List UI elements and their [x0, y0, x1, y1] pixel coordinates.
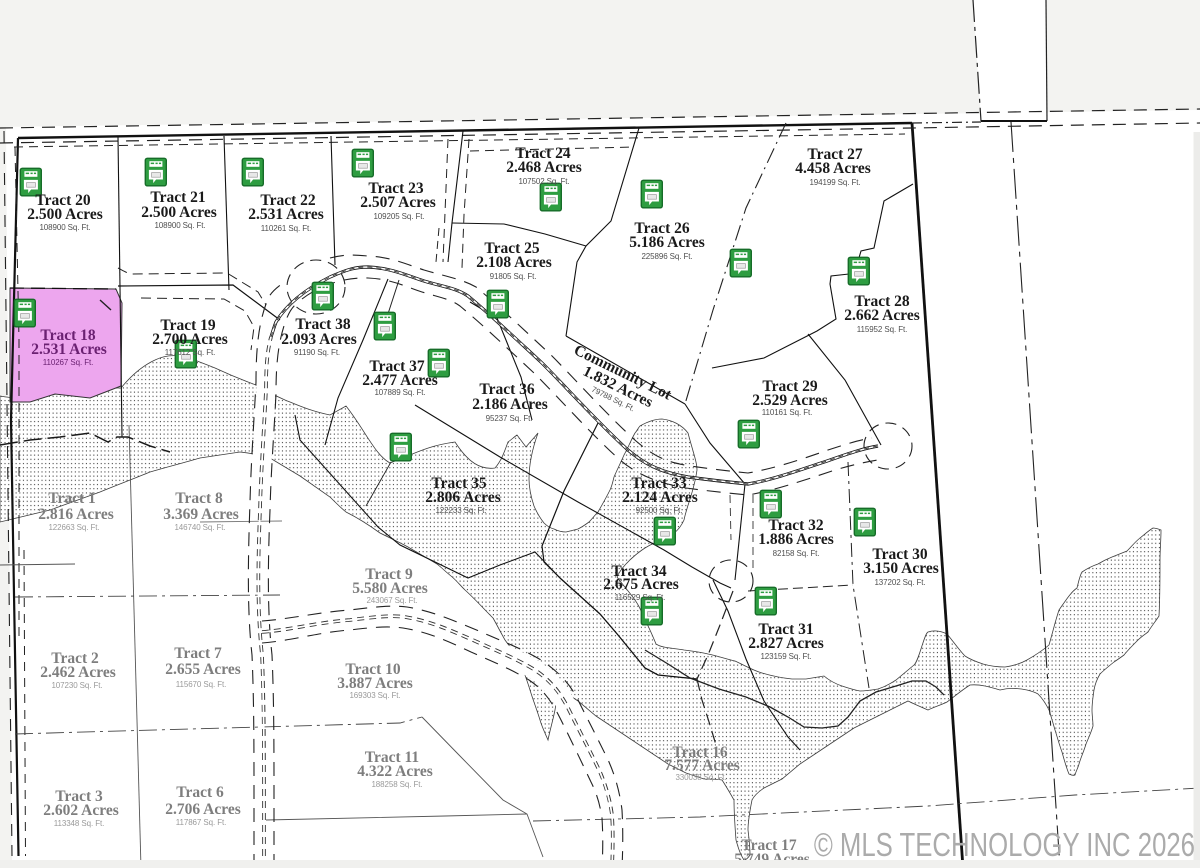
svg-text:108900 Sq. Ft.: 108900 Sq. Ft.: [39, 223, 90, 232]
svg-text:2.529 Acres: 2.529 Acres: [752, 392, 827, 409]
svg-text:109205 Sq. Ft.: 109205 Sq. Ft.: [373, 212, 424, 221]
svg-text:194199 Sq. Ft.: 194199 Sq. Ft.: [809, 178, 860, 187]
svg-text:4.322 Acres: 4.322 Acres: [357, 763, 432, 780]
svg-text:91805 Sq. Ft.: 91805 Sq. Ft.: [490, 272, 537, 281]
svg-text:2.462 Acres: 2.462 Acres: [40, 664, 115, 681]
svg-text:2.655 Acres: 2.655 Acres: [165, 661, 240, 678]
svg-text:243067 Sq. Ft.: 243067 Sq. Ft.: [366, 596, 417, 605]
svg-text:4.458 Acres: 4.458 Acres: [795, 160, 870, 177]
svg-text:110267 Sq. Ft.: 110267 Sq. Ft.: [43, 358, 94, 367]
svg-text:2.507 Acres: 2.507 Acres: [360, 194, 435, 211]
svg-text:Tract 7: Tract 7: [174, 645, 222, 662]
svg-text:7.577 Acres: 7.577 Acres: [664, 757, 739, 774]
svg-text:1.886 Acres: 1.886 Acres: [758, 531, 833, 548]
svg-text:95237 Sq. Ft.: 95237 Sq. Ft.: [486, 414, 533, 423]
svg-text:Tract 1: Tract 1: [48, 490, 95, 507]
svg-text:2.477 Acres: 2.477 Acres: [362, 372, 437, 389]
svg-text:108900 Sq. Ft.: 108900 Sq. Ft.: [154, 221, 205, 230]
svg-text:188258 Sq. Ft.: 188258 Sq. Ft.: [371, 780, 422, 789]
svg-text:2.531 Acres: 2.531 Acres: [248, 206, 323, 223]
svg-text:82158 Sq. Ft.: 82158 Sq. Ft.: [773, 549, 820, 558]
svg-text:2.806 Acres: 2.806 Acres: [425, 489, 500, 506]
svg-text:117867 Sq. Ft.: 117867 Sq. Ft.: [176, 818, 227, 827]
svg-text:2.186 Acres: 2.186 Acres: [472, 396, 547, 413]
svg-text:92500 Sq. Ft.: 92500 Sq. Ft.: [636, 506, 683, 515]
svg-text:2.108 Acres: 2.108 Acres: [476, 254, 551, 271]
svg-text:5.186 Acres: 5.186 Acres: [629, 234, 704, 251]
svg-text:107502 Sq. Ft.: 107502 Sq. Ft.: [518, 177, 569, 186]
svg-text:169303 Sq. Ft.: 169303 Sq. Ft.: [349, 691, 400, 700]
svg-text:330038 Sq. Ft.: 330038 Sq. Ft.: [675, 773, 726, 782]
svg-text:116529 Sq. Ft.: 116529 Sq. Ft.: [615, 593, 666, 602]
svg-text:2.500 Acres: 2.500 Acres: [27, 206, 102, 223]
svg-text:2.662 Acres: 2.662 Acres: [844, 307, 919, 324]
svg-text:91190 Sq. Ft.: 91190 Sq. Ft.: [294, 348, 340, 357]
svg-text:122233 Sq. Ft.: 122233 Sq. Ft.: [435, 506, 486, 515]
svg-text:Tract 6: Tract 6: [176, 784, 224, 801]
svg-text:5.580 Acres: 5.580 Acres: [352, 580, 427, 597]
svg-text:Tract 8: Tract 8: [175, 490, 223, 507]
svg-text:122663 Sq. Ft.: 122663 Sq. Ft.: [48, 523, 99, 532]
svg-text:110261 Sq. Ft.: 110261 Sq. Ft.: [261, 224, 312, 233]
svg-text:2.827 Acres: 2.827 Acres: [748, 635, 823, 652]
svg-text:107230 Sq. Ft.: 107230 Sq. Ft.: [51, 681, 102, 690]
svg-text:2.124 Acres: 2.124 Acres: [622, 489, 697, 506]
svg-text:2.602 Acres: 2.602 Acres: [43, 802, 118, 819]
svg-text:2.706 Acres: 2.706 Acres: [165, 801, 240, 818]
svg-text:2.700 Acres: 2.700 Acres: [152, 331, 227, 348]
svg-text:3.369 Acres: 3.369 Acres: [163, 506, 238, 523]
svg-text:2.675 Acres: 2.675 Acres: [603, 576, 678, 593]
svg-text:117612 Sq. Ft.: 117612 Sq. Ft.: [165, 348, 216, 357]
svg-text:2.500 Acres: 2.500 Acres: [141, 204, 216, 221]
svg-text:115952 Sq. Ft.: 115952 Sq. Ft.: [857, 325, 908, 334]
svg-text:110161 Sq. Ft.: 110161 Sq. Ft.: [762, 408, 813, 417]
svg-text:146740 Sq. Ft.: 146740 Sq. Ft.: [174, 523, 225, 532]
svg-text:3.150 Acres: 3.150 Acres: [863, 560, 938, 577]
svg-text:123159 Sq. Ft.: 123159 Sq. Ft.: [760, 652, 811, 661]
svg-text:2.531 Acres: 2.531 Acres: [31, 341, 106, 358]
svg-text:225896 Sq. Ft.: 225896 Sq. Ft.: [641, 252, 692, 261]
svg-text:© MLS TECHNOLOGY INC 2026: © MLS TECHNOLOGY INC 2026: [814, 827, 1195, 864]
svg-text:113348 Sq. Ft.: 113348 Sq. Ft.: [54, 819, 105, 828]
svg-text:2.816 Acres: 2.816 Acres: [38, 506, 113, 523]
svg-text:2.093 Acres: 2.093 Acres: [281, 331, 356, 348]
svg-text:2.468 Acres: 2.468 Acres: [506, 159, 581, 176]
svg-text:115670 Sq. Ft.: 115670 Sq. Ft.: [176, 680, 227, 689]
svg-text:107889 Sq. Ft.: 107889 Sq. Ft.: [374, 388, 425, 397]
svg-text:137202 Sq. Ft.: 137202 Sq. Ft.: [874, 578, 925, 587]
svg-text:3.887 Acres: 3.887 Acres: [337, 675, 412, 692]
